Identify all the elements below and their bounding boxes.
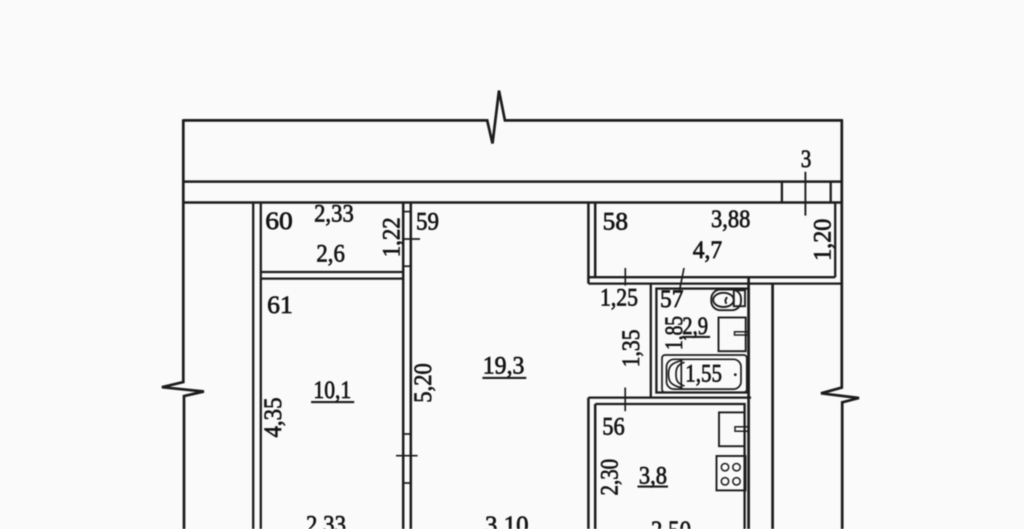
svg-text:2,33: 2,33 [306,512,346,529]
svg-text:61: 61 [267,292,293,319]
svg-text:1,55: 1,55 [685,360,722,387]
svg-text:19,3: 19,3 [483,353,525,380]
svg-text:1,35: 1,35 [618,330,645,368]
svg-text:2,6: 2,6 [316,241,345,268]
svg-text:1,20: 1,20 [810,219,837,261]
svg-text:3,88: 3,88 [711,206,750,233]
svg-text:5,20: 5,20 [410,363,437,402]
svg-text:56: 56 [602,414,625,441]
svg-text:60: 60 [265,208,293,235]
svg-text:4,7: 4,7 [693,237,723,264]
svg-text:2,9: 2,9 [682,313,708,340]
svg-text:10,1: 10,1 [313,377,351,404]
svg-text:2,30: 2,30 [597,459,624,496]
svg-text:59: 59 [416,209,439,236]
svg-text:1,25: 1,25 [600,285,638,312]
svg-text:1,22: 1,22 [378,217,405,257]
svg-text:2,50: 2,50 [651,517,691,529]
svg-text:4,35: 4,35 [260,398,287,438]
svg-text:3,8: 3,8 [639,463,667,490]
svg-text:3: 3 [801,146,812,173]
svg-text:2,33: 2,33 [314,201,354,228]
svg-text:57: 57 [660,286,683,313]
svg-text:3,10: 3,10 [485,512,529,529]
svg-text:58: 58 [603,209,628,236]
